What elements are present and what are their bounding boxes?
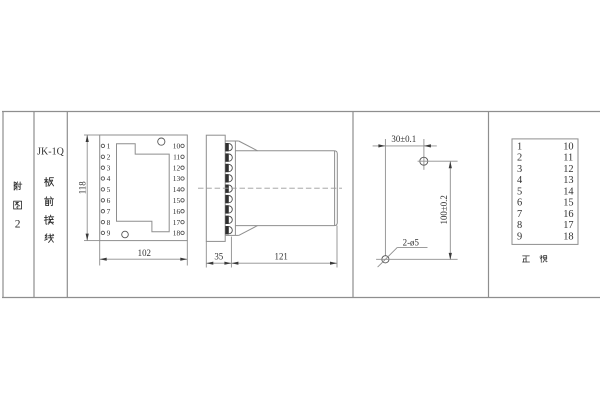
svg-text:5: 5 [107, 185, 111, 194]
svg-text:10: 10 [563, 142, 573, 153]
svg-text:14: 14 [173, 185, 181, 194]
svg-text:15: 15 [173, 196, 181, 205]
svg-text:13: 13 [563, 175, 573, 186]
svg-text:14: 14 [563, 186, 574, 197]
svg-text:18: 18 [173, 229, 181, 238]
svg-text:15: 15 [563, 198, 573, 209]
svg-text:7: 7 [107, 207, 111, 216]
svg-text:7: 7 [517, 209, 522, 220]
svg-text:2: 2 [15, 218, 21, 230]
svg-text:1: 1 [107, 142, 111, 151]
svg-text:100±0.2: 100±0.2 [439, 195, 449, 224]
svg-text:4: 4 [107, 174, 111, 183]
svg-text:8: 8 [517, 220, 522, 231]
svg-text:6: 6 [517, 198, 522, 209]
svg-text:2: 2 [107, 153, 111, 162]
svg-text:3: 3 [107, 163, 111, 172]
svg-text:13: 13 [173, 174, 181, 183]
svg-text:11: 11 [563, 153, 573, 164]
svg-text:5: 5 [517, 186, 522, 197]
svg-text:18: 18 [563, 231, 573, 242]
svg-text:1: 1 [517, 142, 522, 153]
svg-text:9: 9 [517, 231, 522, 242]
svg-text:17: 17 [563, 220, 573, 231]
svg-text:JK-1Q: JK-1Q [37, 147, 64, 158]
svg-text:4: 4 [517, 175, 523, 186]
svg-text:30±0.1: 30±0.1 [391, 134, 416, 144]
svg-text:10: 10 [173, 142, 181, 151]
svg-text:2-ø5: 2-ø5 [403, 238, 420, 248]
svg-text:16: 16 [173, 207, 181, 216]
svg-text:102: 102 [138, 248, 151, 258]
svg-text:16: 16 [563, 209, 573, 220]
svg-text:3: 3 [517, 164, 522, 175]
svg-text:12: 12 [173, 163, 181, 172]
svg-text:6: 6 [107, 196, 111, 205]
svg-text:121: 121 [275, 252, 288, 262]
svg-text:11: 11 [173, 153, 180, 162]
svg-text:35: 35 [214, 252, 223, 262]
svg-text:118: 118 [78, 181, 88, 195]
svg-text:17: 17 [173, 218, 181, 227]
svg-text:9: 9 [107, 229, 111, 238]
svg-text:8: 8 [107, 218, 111, 227]
svg-text:2: 2 [517, 153, 522, 164]
svg-text:12: 12 [563, 164, 573, 175]
